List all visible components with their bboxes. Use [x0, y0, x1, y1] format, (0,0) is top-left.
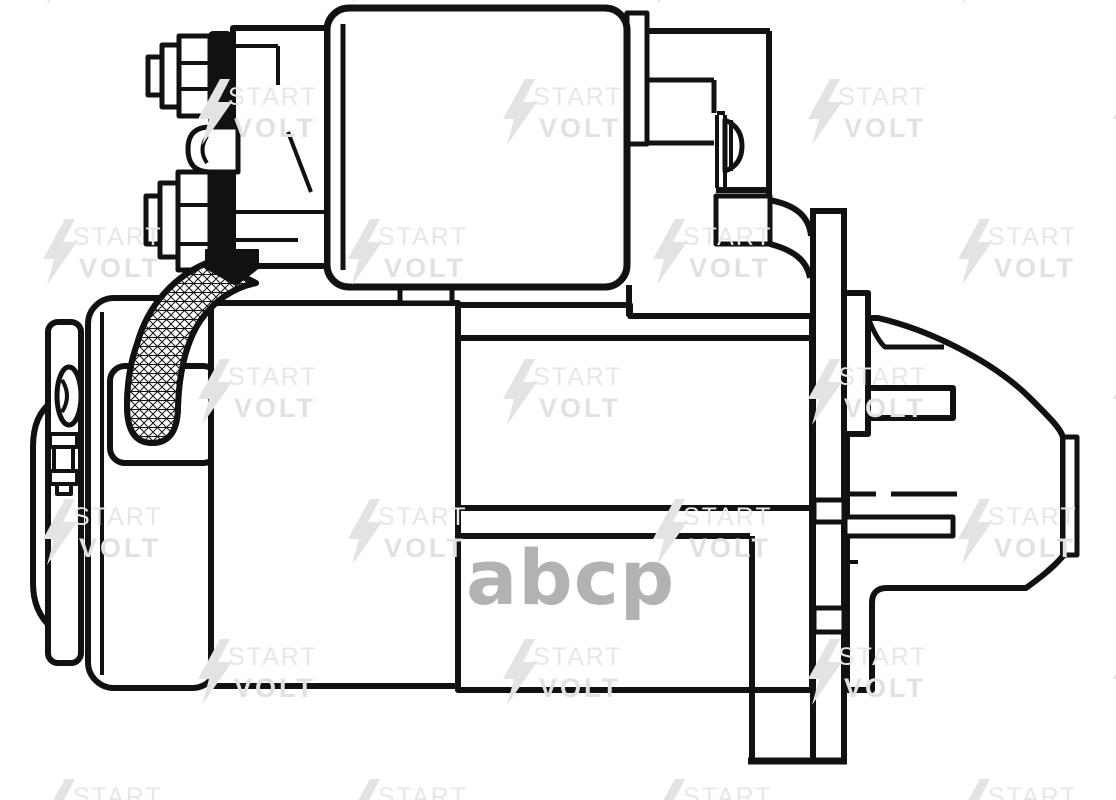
spade-terminal-middle	[188, 127, 238, 172]
watermark-text-start: START	[838, 643, 928, 671]
watermark-text-start: START	[228, 83, 318, 111]
pinion-shaft-lower	[845, 517, 953, 536]
drive-housing-body	[458, 305, 812, 690]
watermark-text-start: START	[533, 83, 623, 111]
watermark-text-start: START	[988, 783, 1078, 800]
yoke-body	[211, 303, 458, 686]
abcp-logo: abcp	[466, 533, 675, 622]
watermark-text-volt: VOLT	[539, 113, 621, 143]
watermark-text-volt: VOLT	[79, 0, 161, 3]
watermark-text-volt: VOLT	[384, 533, 466, 563]
watermark-text-start: START	[838, 363, 928, 391]
lightning-bolt-icon	[958, 779, 992, 800]
lightning-bolt-icon	[348, 779, 382, 800]
watermark-text-start: START	[533, 363, 623, 391]
battery-terminal-upper	[148, 36, 210, 116]
watermark-text-volt: VOLT	[689, 0, 771, 3]
watermark-text-start: START	[228, 643, 318, 671]
startvolt-watermark: STARTVOLT	[348, 779, 468, 800]
startvolt-watermark: STARTVOLT	[348, 0, 468, 5]
watermark-text-start: START	[988, 223, 1078, 251]
lightning-bolt-icon	[43, 0, 77, 5]
startvolt-watermark: STARTVOLT	[958, 0, 1078, 5]
watermark-text-volt: VOLT	[844, 113, 926, 143]
startvolt-watermark: STARTVOLT	[653, 779, 773, 800]
lightning-bolt-icon	[43, 779, 77, 800]
watermark-text-volt: VOLT	[994, 533, 1076, 563]
watermark-text-start: START	[73, 503, 163, 531]
watermark-text-volt: VOLT	[79, 533, 161, 563]
flange-slot-lower	[814, 608, 844, 632]
watermark-text-volt: VOLT	[844, 393, 926, 423]
watermark-text-start: START	[73, 783, 163, 800]
startvolt-watermark: STARTVOLT	[43, 219, 163, 285]
watermark-text-start: START	[838, 83, 928, 111]
lightning-bolt-icon	[958, 219, 992, 285]
lightning-bolt-icon	[43, 219, 77, 285]
watermark-text-start: START	[378, 783, 468, 800]
bracket-gusset-outer	[769, 200, 811, 236]
watermark-text-volt: VOLT	[844, 673, 926, 703]
flange-slot-upper	[814, 500, 844, 522]
watermark-text-start: START	[228, 363, 318, 391]
lightning-bolt-icon	[348, 0, 382, 5]
watermark-text-volt: VOLT	[539, 393, 621, 423]
watermark-text-volt: VOLT	[539, 673, 621, 703]
bracket-screw-head	[725, 120, 742, 171]
lightning-bolt-icon	[808, 79, 842, 145]
watermark-text-volt: VOLT	[384, 253, 466, 283]
lightning-bolt-icon	[653, 219, 687, 285]
lightning-bolt-icon	[958, 0, 992, 5]
watermark-text-start: START	[683, 503, 773, 531]
starter-motor-technical-drawing: STARTVOLTSTARTVOLTSTARTVOLTSTARTVOLTSTAR…	[0, 0, 1116, 800]
startvolt-watermark: STARTVOLT	[958, 779, 1078, 800]
watermark-text-volt: VOLT	[234, 113, 316, 143]
watermark-text-volt: VOLT	[689, 533, 771, 563]
bracket-step	[647, 80, 714, 113]
lightning-bolt-icon	[653, 0, 687, 5]
watermark-text-start: START	[533, 643, 623, 671]
bracket-gusset-inner	[770, 244, 810, 278]
watermark-text-volt: VOLT	[79, 253, 161, 283]
watermark-text-volt: VOLT	[994, 253, 1076, 283]
watermark-text-start: START	[683, 783, 773, 800]
watermark-text-volt: VOLT	[689, 253, 771, 283]
startvolt-watermark: STARTVOLT	[43, 0, 163, 5]
startvolt-watermark: STARTVOLT	[653, 219, 773, 285]
watermark-text-volt: VOLT	[994, 0, 1076, 3]
rear-end-cap	[33, 298, 218, 688]
startvolt-watermark: STARTVOLT	[808, 79, 928, 145]
startvolt-watermark: STARTVOLT	[958, 219, 1078, 285]
watermark-text-start: START	[378, 503, 468, 531]
rear-hex-bolt	[50, 434, 77, 494]
watermark-text-volt: VOLT	[234, 673, 316, 703]
watermark-text-start: START	[378, 223, 468, 251]
motor-yoke	[211, 286, 458, 686]
product-image-canvas: STARTVOLTSTARTVOLTSTARTVOLTSTARTVOLTSTAR…	[0, 0, 1116, 800]
startvolt-watermark: STARTVOLT	[653, 0, 773, 5]
lightning-bolt-icon	[653, 779, 687, 800]
watermark-text-volt: VOLT	[384, 0, 466, 3]
watermark-text-start: START	[988, 503, 1078, 531]
watermark-text-volt: VOLT	[234, 393, 316, 423]
watermark-text-start: START	[683, 223, 773, 251]
watermark-text-start: START	[73, 223, 163, 251]
startvolt-watermark: STARTVOLT	[43, 779, 163, 800]
